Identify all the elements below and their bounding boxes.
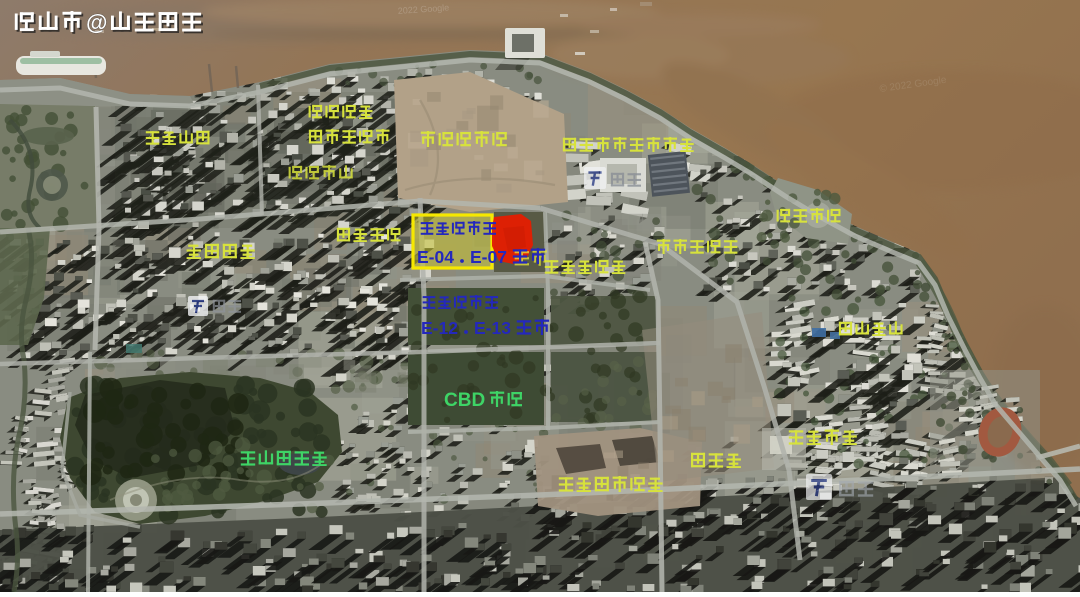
svg-text:E-07: E-07 [470, 247, 507, 267]
svg-text:CBD: CBD [444, 390, 485, 411]
svg-text:E-12: E-12 [421, 318, 458, 338]
svg-text:E-13: E-13 [474, 318, 511, 338]
svg-text:@: @ [86, 10, 107, 35]
svg-text:E-04: E-04 [417, 247, 454, 267]
